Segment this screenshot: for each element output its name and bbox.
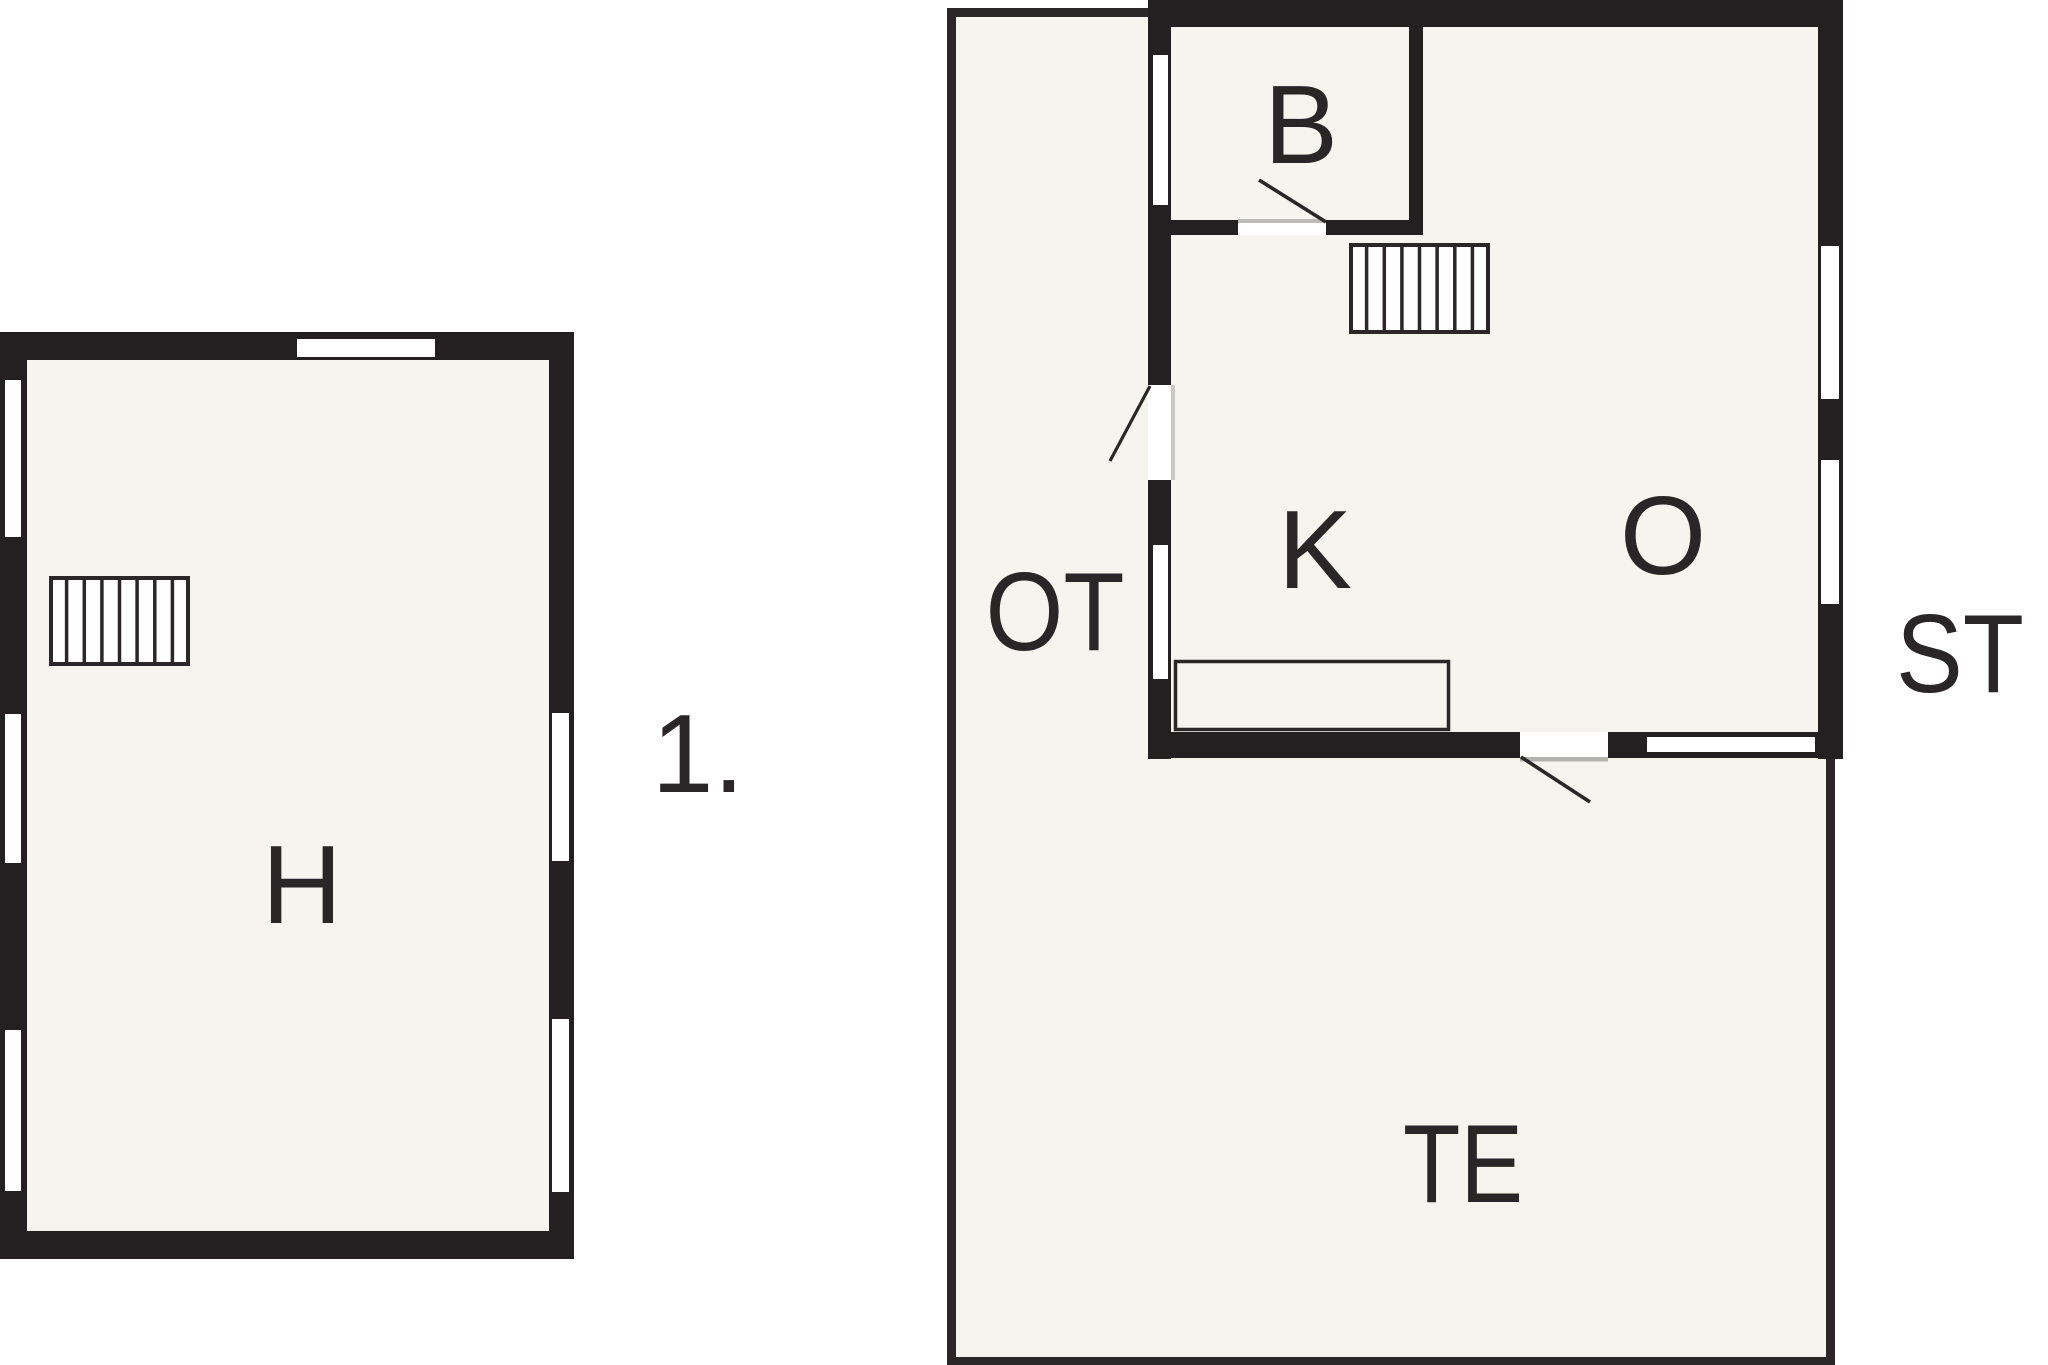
svg-text:O: O <box>1620 474 1706 598</box>
svg-text:1.: 1. <box>652 692 745 816</box>
svg-text:OT: OT <box>986 550 1125 674</box>
svg-text:B: B <box>1264 63 1338 187</box>
svg-text:H: H <box>262 823 342 947</box>
svg-text:ST: ST <box>1896 592 2024 716</box>
svg-text:K: K <box>1278 488 1352 612</box>
svg-text:TE: TE <box>1403 1102 1523 1226</box>
